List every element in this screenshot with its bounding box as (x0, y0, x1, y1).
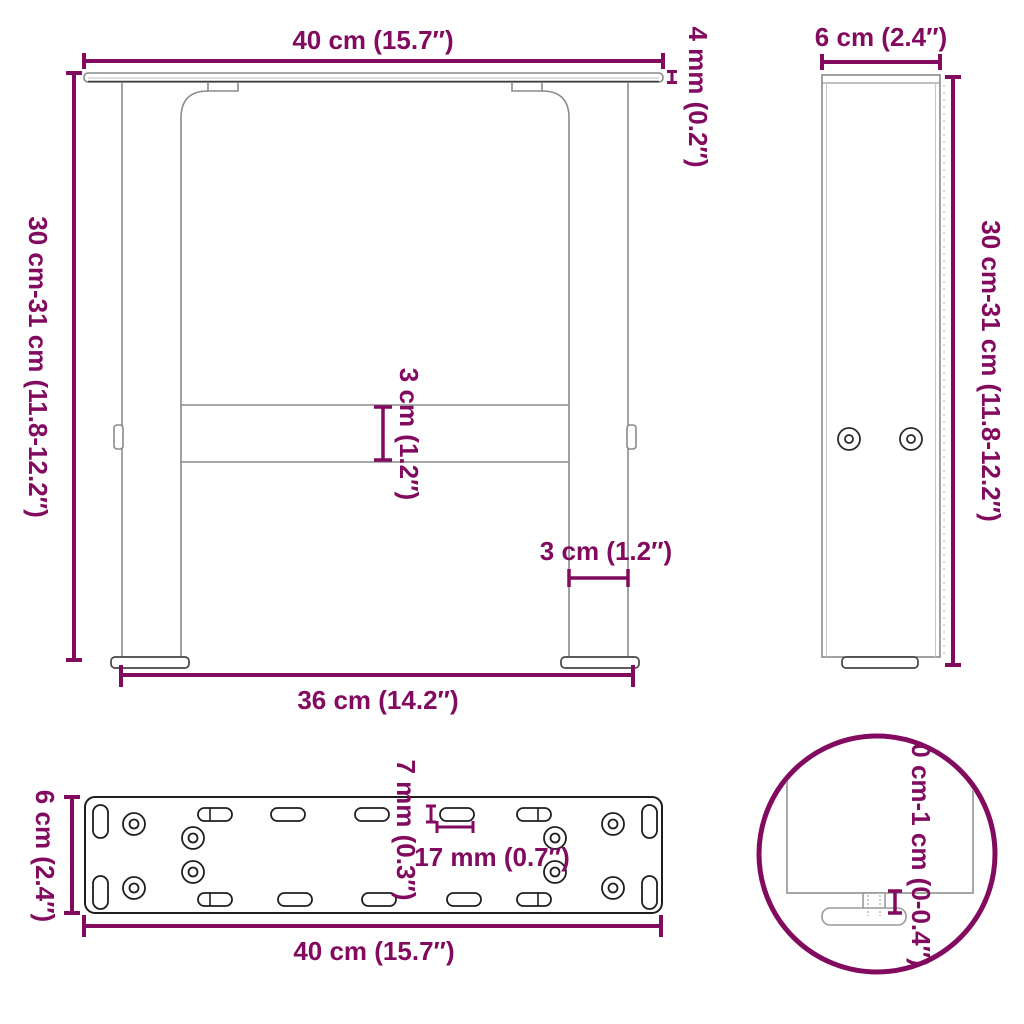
plate-depth-dimension: 6 cm (2.4″) (30, 790, 80, 922)
crossbar-height-dimension: 3 cm (1.2″) (374, 368, 424, 500)
side-screw-hole-left (838, 428, 860, 450)
plate-width-dimension: 40 cm (15.7″) (84, 915, 661, 966)
plate-slot (517, 893, 551, 906)
leg-width-label: 3 cm (1.2″) (540, 536, 672, 566)
plate-grommet-hole (123, 813, 145, 835)
plate-depth-label: 6 cm (2.4″) (30, 790, 60, 922)
plate-slot (271, 808, 305, 821)
right-leg-side-tab (627, 425, 636, 449)
plate-slot (440, 808, 474, 821)
plate-slot (355, 808, 389, 821)
plate-grommet-hole (602, 877, 624, 899)
right-leg-inner-edge (542, 91, 569, 657)
side-height-label: 30 cm-31 cm (11.8-12.2″) (976, 220, 1006, 522)
left-leg-bracket (208, 82, 238, 91)
plate-grommet-hole (602, 813, 624, 835)
right-leg-foot (561, 657, 639, 668)
side-leg-body (822, 75, 940, 657)
leg-width-dimension: 3 cm (1.2″) (540, 536, 672, 587)
plate-corner-slot (642, 805, 657, 838)
slot-width-label: 7 mm (0.3″) (391, 759, 421, 900)
slot-spacing-label: 17 mm (0.7″) (414, 842, 570, 872)
side-depth-dimension: 6 cm (2.4″) (815, 22, 947, 70)
detail-circle-ring (759, 736, 995, 972)
diagram-canvas: 40 cm (15.7″) 4 mm (0.2″) 30 cm-31 cm (1… (0, 0, 1024, 1024)
left-leg-inner-edge (181, 91, 208, 657)
front-bottom-width-label: 36 cm (14.2″) (297, 685, 458, 715)
side-leg-foot (842, 657, 918, 668)
front-top-width-label: 40 cm (15.7″) (292, 25, 453, 55)
plate-top-view: 7 mm (0.3″) 17 mm (0.7″) 6 cm (2.4″) 40 … (30, 759, 662, 966)
plate-grommet-hole (182, 861, 204, 883)
dimension-diagram: 40 cm (15.7″) 4 mm (0.2″) 30 cm-31 cm (1… (0, 0, 1024, 1024)
detail-leg-outline (787, 720, 973, 893)
front-view: 40 cm (15.7″) 4 mm (0.2″) 30 cm-31 cm (1… (23, 25, 713, 715)
front-top-width-dimension: 40 cm (15.7″) (84, 25, 663, 69)
plate-slot (198, 808, 232, 821)
front-height-label: 30 cm-31 cm (11.8-12.2″) (23, 216, 53, 518)
front-height-dimension: 30 cm-31 cm (11.8-12.2″) (23, 73, 82, 660)
front-thickness-label: 4 mm (0.2″) (683, 26, 713, 167)
plate-corner-slot (93, 805, 108, 838)
plate-grommet-hole (182, 827, 204, 849)
plate-corner-slot (642, 876, 657, 909)
side-view: 6 cm (2.4″) 30 cm-31 cm (11.8-12.2″) (815, 22, 1006, 668)
plate-slot (517, 808, 551, 821)
crossbar-height-label: 3 cm (1.2″) (394, 368, 424, 500)
foot-detail-view: 0 cm-1 cm (0-0.4″) (759, 720, 995, 972)
plate-corner-slot (93, 876, 108, 909)
side-height-dimension: 30 cm-31 cm (11.8-12.2″) (945, 77, 1006, 665)
plate-slot (447, 893, 481, 906)
side-screw-hole-right (900, 428, 922, 450)
front-thickness-dimension: 4 mm (0.2″) (667, 26, 713, 167)
plate-width-label: 40 cm (15.7″) (293, 936, 454, 966)
front-bottom-width-dimension: 36 cm (14.2″) (121, 665, 633, 715)
plate-slot (278, 893, 312, 906)
plate-slot (198, 893, 232, 906)
adjustment-range-label: 0 cm-1 cm (0-0.4″) (906, 743, 936, 966)
left-leg-side-tab (114, 425, 123, 449)
side-depth-label: 6 cm (2.4″) (815, 22, 947, 52)
right-leg-bracket (512, 82, 542, 91)
adjustment-range-dimension: 0 cm-1 cm (0-0.4″) (888, 743, 936, 966)
plate-grommet-hole (123, 877, 145, 899)
plate-slot (362, 893, 396, 906)
